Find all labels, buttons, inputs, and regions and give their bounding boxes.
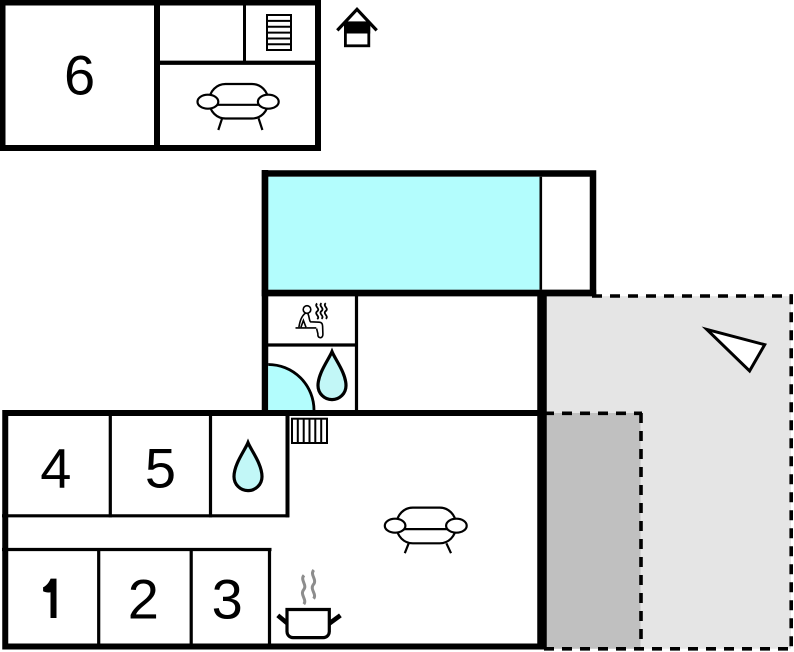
svg-text:6: 6 bbox=[64, 44, 95, 107]
svg-text:2: 2 bbox=[128, 568, 159, 631]
svg-text:4: 4 bbox=[40, 437, 71, 500]
svg-text:3: 3 bbox=[212, 568, 243, 631]
svg-text:5: 5 bbox=[145, 437, 176, 500]
